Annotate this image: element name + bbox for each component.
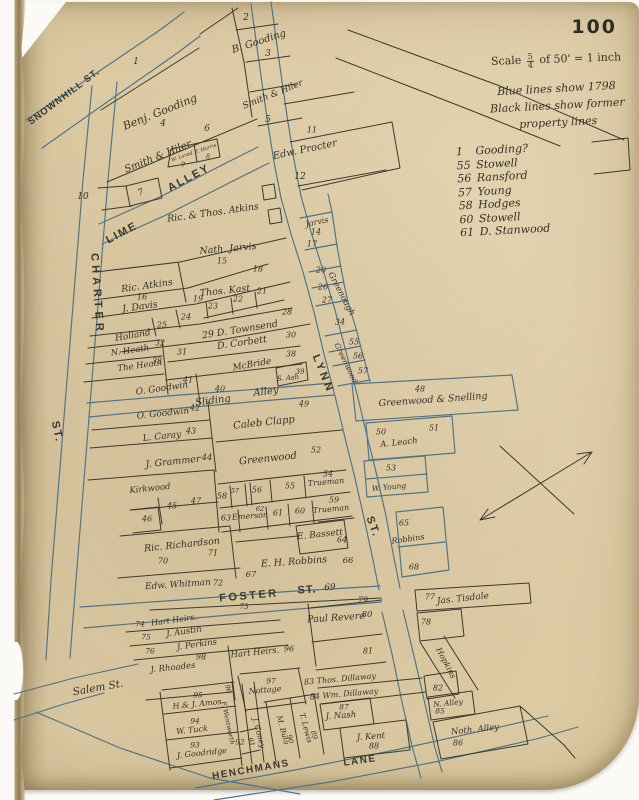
map-label: 88 (369, 742, 379, 751)
map-label: 92 (235, 738, 245, 747)
map-label: Trueman (307, 476, 344, 488)
map-label: H.& J. Amos (172, 697, 222, 711)
map-label: 76 (145, 647, 155, 656)
map-label: Salem St. (72, 678, 124, 699)
map-label: Nottage (248, 684, 282, 696)
map-label: 74 (135, 620, 145, 629)
map-label: 89 (309, 730, 319, 741)
map-label: Sliding (195, 393, 232, 408)
map-label: 78 (421, 618, 431, 627)
map-label: 68 (409, 563, 419, 572)
map-label: 8 (206, 154, 210, 161)
map-label: 77 (425, 593, 435, 602)
map-key-notes: Blue lines show 1798 Black lines show fo… (489, 77, 626, 135)
map-label: 60 (295, 507, 305, 516)
map-label: Kirkwood (129, 482, 171, 496)
map-label: 79 (358, 596, 368, 605)
map-label: 17 (307, 240, 317, 249)
map-label: J. Rhoades (150, 661, 196, 676)
map-label: 51 (429, 424, 439, 433)
map-label: 63 (221, 514, 231, 523)
map-label: W. Young (371, 481, 406, 494)
map-label: Greenwood (332, 341, 359, 384)
atlas-page: SNOWNHILL ST.LIMEALLEYCHARTERST.LYNNST.F… (0, 0, 639, 800)
map-label: 69 (324, 583, 336, 594)
map-label: 44 (202, 453, 213, 463)
map-label: 57 (358, 367, 368, 376)
map-label: Robbins (391, 532, 425, 545)
map-label: 34 (335, 318, 345, 327)
map-label: Greenough (325, 271, 356, 318)
map-label: L. Caray (142, 430, 182, 444)
map-label: Hart Heirs. (230, 645, 280, 660)
street-label: ALLEY (166, 162, 212, 194)
map-label: F. Wentworth (220, 701, 237, 746)
map-label: 4 (160, 119, 166, 129)
map-label: 24 (181, 313, 191, 322)
map-label: 42 (190, 404, 200, 413)
map-label: 6 (204, 124, 210, 134)
map-label: 26 (318, 283, 328, 292)
map-label: B. Gooding (231, 28, 288, 56)
map-label: 30 (286, 331, 296, 340)
map-label: Nath. Jarvis (199, 241, 257, 257)
street-label: LIME (104, 220, 140, 247)
map-label: 5 (265, 115, 271, 125)
map-label: 31 (177, 348, 187, 357)
map-label: J. Perkins (176, 637, 217, 653)
map-label: 53 (386, 464, 396, 473)
map-label: Greenwood & Snelling (378, 391, 488, 410)
map-label: 28 (282, 308, 292, 317)
map-label: O. Goodwin (136, 406, 190, 421)
map-label: 23 (208, 302, 218, 311)
map-label: 7 (136, 187, 145, 198)
map-label: 39 (296, 368, 305, 376)
map-label: 40 (215, 385, 225, 394)
map-label: Holland (114, 328, 151, 344)
street-label: ST. (297, 583, 317, 596)
map-label: 19 (193, 295, 203, 304)
map-label: 82 (433, 684, 443, 693)
map-label: 90 (285, 734, 295, 745)
map-label: J. Austin (166, 625, 203, 640)
scale-word: Scale (491, 54, 522, 68)
map-label: Edw. Procter (272, 138, 338, 162)
map-label: 85 (435, 707, 445, 716)
map-label: Trueman (312, 503, 349, 515)
map-label: Noth. Alley (450, 723, 499, 738)
map-label: Edw. Whitman (145, 578, 211, 593)
map-label: E. H. Robbins (261, 554, 328, 570)
street-label: HENCHMANS (211, 758, 290, 782)
street-label: CHARTER (88, 253, 106, 335)
map-label: 3 (265, 49, 271, 59)
map-label: 56 (252, 486, 262, 495)
map-label: Ric. & Thos. Atkins (166, 201, 259, 225)
street-label: LYNN (310, 353, 336, 395)
map-label: Smith & Hiler (241, 78, 304, 111)
scale-rest: of 50' = 1 inch (539, 50, 621, 66)
map-label: 2 (243, 13, 249, 23)
map-label: 56 (353, 352, 363, 361)
map-label: 38 (286, 350, 296, 359)
map-label: 72 (213, 579, 223, 588)
street-label: FOSTER (219, 587, 279, 604)
map-label: 67 (246, 570, 257, 580)
map-label: 14 (311, 228, 321, 237)
map-label: 61 (273, 509, 283, 518)
map-label: N. Heath (110, 343, 150, 358)
map-label: 50 (376, 428, 386, 437)
map-label: Emerson (232, 510, 269, 521)
map-label: 91 (246, 737, 256, 748)
map-label: 86 (453, 739, 463, 748)
map-label: 15 (217, 257, 227, 266)
map-label: 70 (158, 557, 168, 566)
street-label: SNOWNHILL ST. (26, 67, 102, 128)
map-label: Paul Revere (307, 610, 365, 625)
map-label: 47 (191, 497, 201, 506)
map-label: 66 (343, 556, 354, 566)
map-label: 83 Thos. Dillaway (304, 671, 377, 686)
map-label: J. Nash (325, 710, 356, 722)
map-label: 25 (157, 321, 167, 330)
owner-legend: 1 Gooding? 55 Stowell 56 Ransford 57 You… (456, 141, 551, 240)
map-label: Hopkins (434, 646, 458, 680)
map-label: Caleb Clapp (233, 414, 296, 431)
map-label: 10 (77, 192, 88, 202)
map-label: W. Tuck (176, 724, 209, 736)
map-label: 48 (415, 385, 425, 394)
map-label: 64 (337, 536, 347, 545)
map-label: 98 (196, 653, 206, 662)
map-label: 46 (142, 515, 152, 524)
map-label: 52 (311, 446, 321, 455)
map-label: 71 (208, 549, 218, 558)
map-label: McBride (232, 357, 272, 374)
map-label: J. Davis (122, 299, 159, 315)
street-label: ST. (49, 420, 65, 444)
map-label: 80 (362, 610, 373, 620)
map-label: 27 (322, 296, 332, 305)
map-label: 11 (307, 126, 317, 135)
map-label: 84 Wm. Dillaway (309, 687, 378, 702)
map-label: 12 (294, 172, 305, 182)
map-label: 55 (349, 338, 359, 347)
page-number: 100 (571, 16, 617, 38)
map-label: Jas. Tisdale (437, 591, 490, 606)
map-label: 58 (217, 492, 227, 501)
map-label: 41 (183, 376, 193, 385)
map-label: 96 (223, 684, 233, 695)
map-label: O. Goodwin (135, 380, 189, 397)
map-label: Greenwood (239, 450, 298, 467)
map-label: 32 (155, 339, 165, 348)
map-label: 75 (141, 633, 151, 642)
map-label: 57 (231, 487, 239, 495)
map-label: 21 (257, 287, 267, 296)
map-label: 45 (167, 502, 177, 511)
map-label: 18 (253, 265, 263, 274)
map-label: 43 (186, 427, 196, 436)
map-label: 73 (240, 603, 249, 611)
map-label: 49 (299, 400, 309, 409)
map-label: J. Goodridge (177, 746, 228, 760)
scale-fraction: 54 (526, 53, 534, 69)
map-label: J. Grammer (145, 454, 201, 471)
map-label: A. Leach (380, 436, 418, 450)
map-label: 65 (399, 519, 409, 528)
map-label: 20 (316, 266, 326, 275)
map-label: Alley (253, 385, 279, 399)
map-label: 96 (284, 645, 294, 654)
map-label: 1 (133, 57, 139, 67)
map-label: 55 (285, 482, 295, 491)
map-label: 9 (181, 162, 185, 169)
street-label: ST. (364, 515, 383, 540)
street-label: LANE (343, 753, 377, 769)
map-label: 33 (152, 357, 162, 366)
map-label: 81 (363, 647, 373, 656)
map-label: 22 (233, 295, 243, 304)
